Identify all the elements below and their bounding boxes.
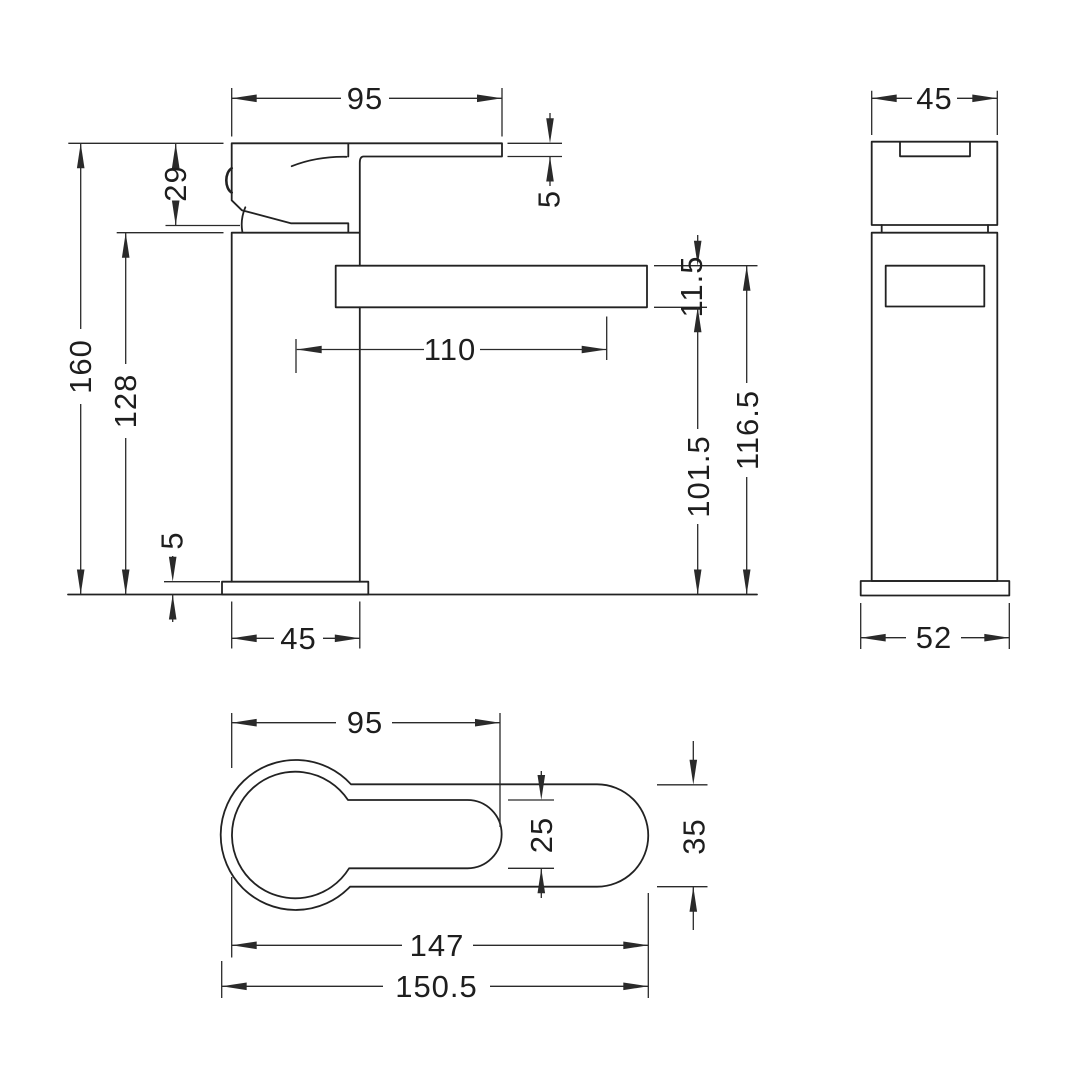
dim-front-top-width: 95 bbox=[232, 81, 502, 116]
arrow-up-icon bbox=[169, 595, 177, 620]
dim-front-spout-underside-height: 101.5 bbox=[681, 307, 716, 594]
dim-label-front-top-width: 95 bbox=[347, 81, 383, 116]
arrow-right-icon bbox=[475, 719, 500, 727]
side-extension-lines bbox=[861, 91, 1010, 649]
dim-front-spout-reach: 110 bbox=[297, 332, 607, 367]
dim-plan-body-length: 147 bbox=[232, 928, 649, 963]
arrow-down-icon bbox=[690, 760, 698, 785]
dim-front-overall-height: 160 bbox=[63, 143, 98, 594]
plan-outer-footprint bbox=[221, 760, 649, 910]
front-outline bbox=[68, 143, 757, 594]
arrow-right-icon bbox=[984, 634, 1009, 642]
dim-label-side-top-width: 45 bbox=[916, 81, 952, 116]
arrow-left-icon bbox=[222, 983, 247, 991]
arrow-left-icon bbox=[297, 346, 322, 354]
dim-label-front-spout-reach: 110 bbox=[424, 332, 476, 367]
arrow-up-icon bbox=[122, 233, 130, 258]
arrow-left-icon bbox=[232, 635, 257, 643]
arrow-up-icon bbox=[743, 266, 751, 291]
arrow-right-icon bbox=[623, 983, 648, 991]
dim-front-lever-thickness: 5 bbox=[532, 113, 567, 208]
dim-label-front-handle-height: 29 bbox=[158, 165, 193, 201]
arrow-right-icon bbox=[623, 942, 648, 950]
tap-technical-drawing: 95 29 160 128 5 bbox=[0, 0, 1080, 1080]
dim-label-front-spout-thickness: 11.5 bbox=[674, 255, 709, 317]
dim-front-body-width: 45 bbox=[232, 621, 360, 656]
dim-label-front-overall-height: 160 bbox=[63, 339, 98, 394]
arrow-down-icon bbox=[546, 118, 554, 143]
dim-plan-spout-width: 35 bbox=[676, 741, 711, 930]
front-base-plate bbox=[222, 582, 368, 595]
arrow-right-icon bbox=[582, 346, 607, 354]
dim-label-front-base-thickness: 5 bbox=[155, 531, 190, 549]
arrow-down-icon bbox=[743, 570, 751, 595]
side-base-plate bbox=[861, 581, 1010, 596]
side-body bbox=[872, 233, 998, 581]
dim-label-front-lever-thickness: 5 bbox=[532, 190, 567, 208]
arrow-down-icon bbox=[694, 570, 702, 595]
arrow-up-icon bbox=[538, 868, 546, 893]
drawing-canvas: 95 29 160 128 5 bbox=[0, 0, 1080, 1080]
dim-label-side-base-width: 52 bbox=[916, 620, 952, 655]
dim-front-base-thickness: 5 bbox=[155, 531, 190, 622]
front-view: 95 29 160 128 5 bbox=[63, 81, 765, 656]
dim-front-spout-top-height: 116.5 bbox=[730, 266, 765, 595]
dim-label-plan-spout-width: 35 bbox=[676, 818, 711, 854]
side-neck-joint bbox=[882, 225, 988, 233]
dim-label-plan-body-length: 147 bbox=[410, 928, 465, 963]
arrow-left-icon bbox=[861, 634, 886, 642]
dim-label-plan-handle-length: 95 bbox=[347, 705, 383, 740]
side-view: 45 52 bbox=[861, 81, 1010, 655]
dim-label-front-spout-top-height: 116.5 bbox=[730, 390, 765, 470]
arrow-up-icon bbox=[77, 143, 85, 168]
arrow-down-icon bbox=[77, 570, 85, 595]
dim-front-handle-height: 29 bbox=[158, 143, 193, 225]
arrow-left-icon bbox=[872, 95, 897, 103]
dim-label-plan-handle-width: 25 bbox=[524, 817, 559, 853]
dim-plan-overall-length: 150.5 bbox=[222, 969, 649, 1004]
arrow-down-icon bbox=[122, 570, 130, 595]
plan-inner-body-lever bbox=[232, 772, 502, 899]
plan-extension-lines bbox=[222, 713, 708, 998]
arrow-right-icon bbox=[477, 95, 502, 103]
arrow-up-icon bbox=[546, 157, 554, 182]
arrow-up-icon bbox=[690, 887, 698, 912]
dim-label-plan-overall-length: 150.5 bbox=[395, 969, 478, 1004]
dim-front-spout-thickness: 11.5 bbox=[674, 235, 709, 332]
dim-side-base-width: 52 bbox=[861, 620, 1010, 655]
arrow-right-icon bbox=[972, 95, 997, 103]
dim-front-body-height: 128 bbox=[108, 233, 143, 595]
plan-view: 95 25 35 147 150.5 bbox=[221, 705, 712, 1004]
arrow-left-icon bbox=[232, 942, 257, 950]
arrow-up-icon bbox=[172, 143, 180, 168]
front-spout bbox=[336, 266, 647, 308]
arrow-right-icon bbox=[335, 635, 360, 643]
arrow-left-icon bbox=[232, 719, 257, 727]
arrow-down-icon bbox=[169, 557, 177, 582]
side-handle-block bbox=[872, 142, 998, 225]
dim-label-front-body-height: 128 bbox=[108, 374, 143, 429]
side-spout-outlet bbox=[886, 266, 985, 307]
arrow-down-icon bbox=[172, 201, 180, 226]
arrow-down-icon bbox=[538, 775, 546, 800]
plan-outline bbox=[221, 760, 649, 910]
dim-plan-handle-length: 95 bbox=[232, 705, 500, 740]
dim-plan-handle-width: 25 bbox=[524, 771, 559, 898]
arrow-left-icon bbox=[232, 95, 257, 103]
side-outline bbox=[861, 142, 1010, 596]
dim-label-front-spout-underside-height: 101.5 bbox=[681, 435, 716, 518]
dim-side-top-width: 45 bbox=[872, 81, 998, 116]
dim-label-front-body-width: 45 bbox=[280, 621, 316, 656]
